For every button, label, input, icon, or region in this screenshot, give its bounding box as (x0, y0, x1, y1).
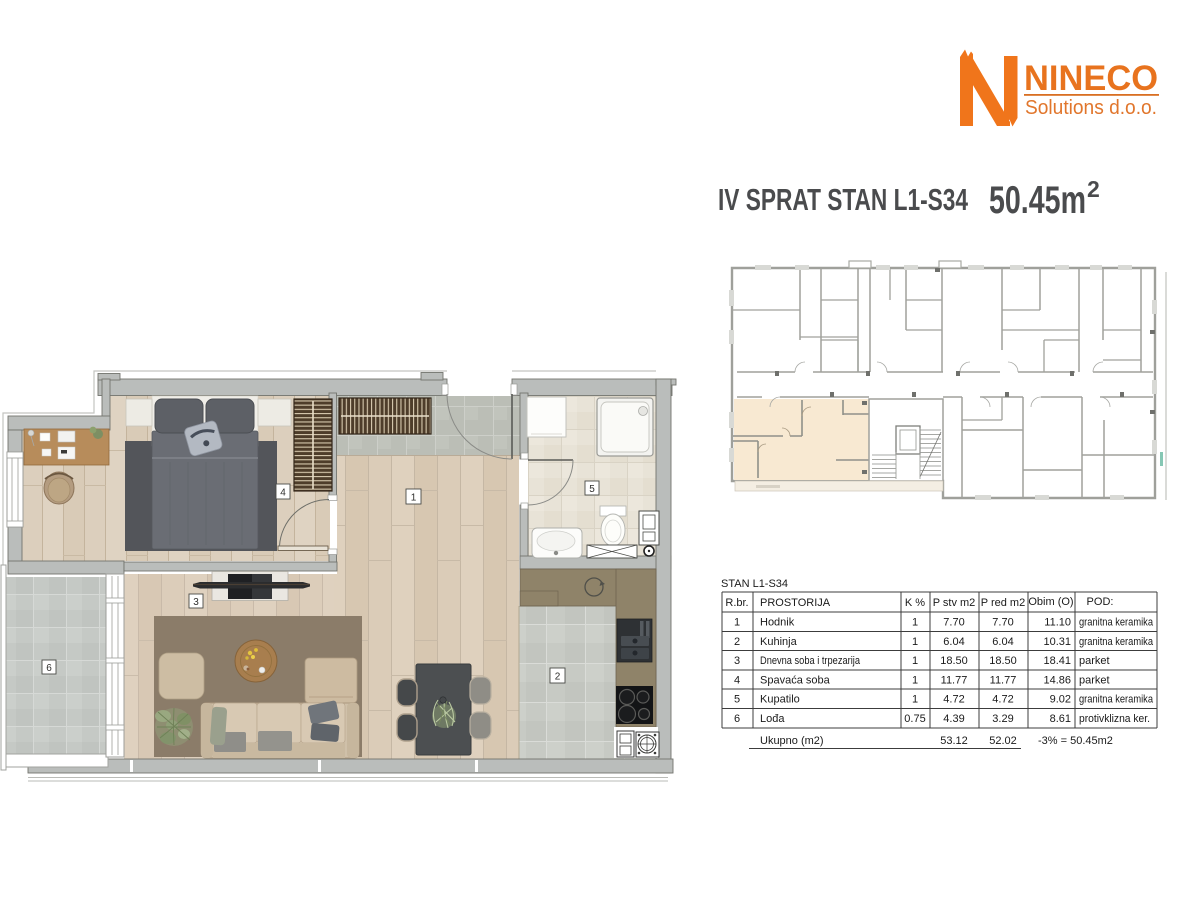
svg-text:Kuhinja: Kuhinja (760, 636, 798, 648)
svg-text:Hodnik: Hodnik (760, 617, 795, 629)
svg-text:3: 3 (734, 655, 740, 667)
svg-text:2: 2 (1087, 176, 1100, 202)
svg-text:1: 1 (912, 694, 918, 706)
svg-text:Spavaća soba: Spavaća soba (760, 674, 831, 686)
svg-text:52.02: 52.02 (989, 735, 1017, 747)
svg-text:11.77: 11.77 (941, 674, 968, 686)
svg-text:6.04: 6.04 (943, 636, 964, 648)
svg-text:18.41: 18.41 (1043, 655, 1071, 667)
svg-text:Dnevna soba i trpezarija: Dnevna soba i trpezarija (760, 655, 861, 667)
svg-text:parket: parket (1079, 655, 1110, 667)
svg-text:2: 2 (555, 672, 561, 683)
svg-text:1: 1 (734, 617, 740, 629)
svg-text:2: 2 (734, 636, 740, 648)
svg-text:Lođa: Lođa (760, 713, 785, 725)
svg-text:1: 1 (912, 636, 918, 648)
svg-text:3.29: 3.29 (992, 713, 1013, 725)
svg-text:granitna keramika: granitna keramika (1079, 617, 1154, 629)
svg-text:9.02: 9.02 (1050, 694, 1071, 706)
svg-text:POD:: POD: (1087, 596, 1114, 608)
svg-text:50.45m: 50.45m (989, 179, 1086, 222)
svg-text:11.77: 11.77 (990, 674, 1017, 686)
svg-text:6: 6 (734, 713, 740, 725)
svg-text:0.75: 0.75 (904, 713, 925, 725)
svg-text:protivklizna ker.: protivklizna ker. (1079, 713, 1150, 725)
svg-text:-3% = 50.45m2: -3% = 50.45m2 (1038, 735, 1113, 747)
svg-text:1: 1 (912, 674, 918, 686)
svg-text:5: 5 (734, 694, 740, 706)
svg-text:5: 5 (589, 484, 595, 495)
svg-text:parket: parket (1079, 674, 1110, 686)
svg-text:4: 4 (734, 674, 740, 686)
svg-text:4.72: 4.72 (992, 694, 1013, 706)
svg-text:Obim (O): Obim (O) (1028, 596, 1073, 608)
svg-text:53.12: 53.12 (940, 735, 968, 747)
svg-text:1: 1 (912, 655, 918, 667)
svg-text:14.86: 14.86 (1043, 674, 1071, 686)
svg-text:Ukupno (m2): Ukupno (m2) (760, 735, 824, 747)
svg-text:Solutions d.o.o.: Solutions d.o.o. (1025, 97, 1157, 119)
svg-text:1: 1 (411, 493, 417, 504)
svg-text:Kupatilo: Kupatilo (760, 694, 800, 706)
svg-text:granitna keramika: granitna keramika (1079, 636, 1154, 648)
svg-text:18.50: 18.50 (989, 655, 1017, 667)
svg-text:7.70: 7.70 (992, 617, 1013, 629)
svg-text:6: 6 (46, 663, 52, 674)
svg-text:4: 4 (280, 488, 286, 499)
svg-text:6.04: 6.04 (992, 636, 1013, 648)
svg-text:IV SPRAT STAN L1-S34: IV SPRAT STAN L1-S34 (718, 182, 969, 217)
svg-text:P stv m2: P stv m2 (933, 597, 976, 609)
svg-text:P red m2: P red m2 (981, 597, 1025, 609)
svg-text:STAN L1-S34: STAN L1-S34 (721, 578, 788, 590)
svg-text:8.61: 8.61 (1050, 713, 1071, 725)
svg-text:3: 3 (193, 597, 199, 608)
svg-text:R.br.: R.br. (725, 597, 748, 609)
svg-text:PROSTORIJA: PROSTORIJA (760, 597, 831, 609)
svg-text:11.10: 11.10 (1044, 617, 1071, 629)
svg-text:18.50: 18.50 (940, 655, 968, 667)
svg-text:granitna keramika: granitna keramika (1079, 694, 1154, 706)
svg-text:4.72: 4.72 (943, 694, 964, 706)
svg-text:K %: K % (905, 597, 925, 609)
svg-text:7.70: 7.70 (943, 617, 964, 629)
svg-text:NINECO: NINECO (1024, 59, 1158, 98)
svg-text:1: 1 (912, 617, 918, 629)
svg-text:10.31: 10.31 (1043, 636, 1071, 648)
svg-text:4.39: 4.39 (943, 713, 964, 725)
